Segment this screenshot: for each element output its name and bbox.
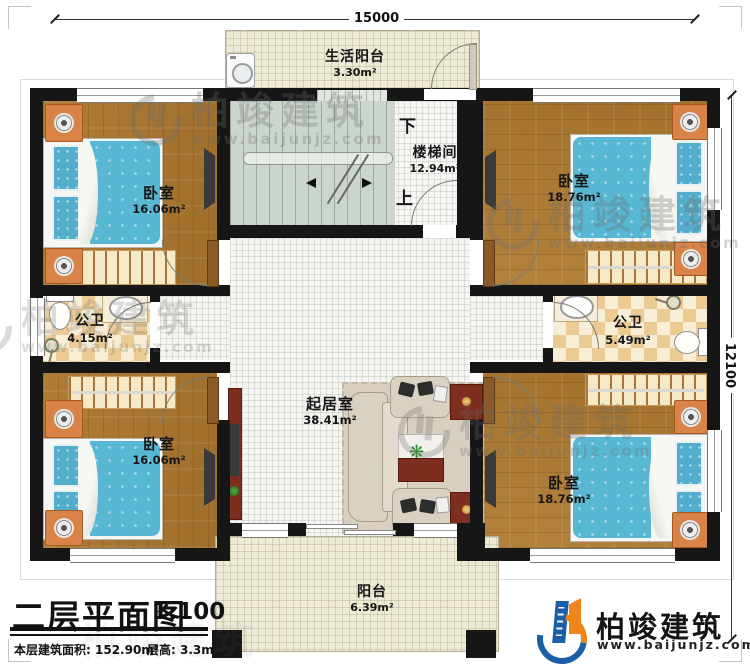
- floor-height-value: 3.3m: [180, 643, 214, 657]
- shower-head: [666, 295, 681, 310]
- crop-mark: [8, 6, 31, 29]
- nightstand: [674, 400, 708, 434]
- window: [530, 548, 675, 563]
- floor-area-note: 本层建筑面积: 152.90m²: [14, 641, 159, 658]
- nightstand: [672, 104, 708, 140]
- sofa-cushion: [400, 498, 417, 514]
- floor-height-label: 层高:: [147, 643, 176, 657]
- room-area-bathroom-left: 4.15m²: [58, 331, 122, 345]
- washing-machine-door: [232, 63, 253, 84]
- side-cabinet: [450, 384, 483, 420]
- title-underline: [10, 627, 208, 631]
- room-label-bedroom-br: 卧室: [514, 475, 614, 492]
- room-label-balcony: 阳台: [327, 585, 417, 600]
- wall: [217, 101, 230, 240]
- tv: [485, 150, 496, 210]
- room-area-living-room: 38.41m²: [282, 413, 378, 427]
- wardrobe: [68, 250, 176, 285]
- window: [77, 88, 203, 103]
- room-area-bathroom-right: 5.49m²: [594, 333, 662, 347]
- washing-machine-knob: [230, 56, 236, 59]
- sofa-cushion: [419, 499, 436, 514]
- wall: [30, 362, 230, 373]
- wall: [30, 285, 230, 296]
- room-area-bedroom-tr: 18.76m²: [519, 190, 629, 204]
- door-leaf: [207, 240, 219, 287]
- bed-pillow: [52, 444, 80, 487]
- wall: [470, 285, 720, 296]
- room-label-life-balcony: 生活阳台: [280, 50, 430, 65]
- window: [70, 548, 175, 563]
- room-area-bedroom-tl: 16.06m²: [104, 202, 214, 216]
- drawing-scale: 1:100: [152, 599, 225, 625]
- wall: [230, 225, 423, 238]
- crop-mark: [719, 6, 742, 29]
- nightstand: [45, 510, 83, 546]
- sofa-cushion: [398, 381, 416, 397]
- stair-window: [317, 90, 387, 101]
- logo-swoosh-icon: [527, 604, 597, 668]
- tv: [230, 424, 239, 476]
- room-label-bedroom-tl: 卧室: [109, 185, 209, 202]
- room-label-living-room: 起居室: [285, 396, 375, 413]
- stair-up-label: 上: [396, 184, 413, 209]
- armchair: [390, 376, 450, 418]
- wall: [456, 225, 470, 238]
- stair-direction-arrow: [362, 178, 372, 188]
- hallway-left-floor: [160, 296, 230, 360]
- hallway-right-floor: [470, 296, 543, 360]
- door-opening: [424, 89, 476, 100]
- room-area-life-balcony: 3.30m²: [280, 66, 430, 79]
- wall: [393, 523, 414, 536]
- room-area-balcony: 6.39m²: [325, 601, 419, 614]
- stair-direction-arrow: [306, 178, 316, 188]
- nightstand: [674, 242, 708, 276]
- nightstand: [45, 248, 83, 284]
- bed-sheet-fold: [649, 437, 669, 538]
- wall: [150, 348, 160, 362]
- wall: [288, 523, 306, 536]
- balcony-pillar: [212, 630, 242, 658]
- door-leaf: [469, 44, 477, 90]
- company-logo: [540, 598, 590, 656]
- tv: [485, 450, 496, 508]
- wall: [543, 296, 553, 302]
- nightstand: [45, 104, 83, 142]
- plant-icon: ❋: [409, 444, 424, 462]
- nightstand: [672, 512, 708, 548]
- sliding-door: [306, 524, 394, 535]
- room-label-bathroom-left: 公卫: [62, 314, 118, 329]
- bed-pillow: [675, 441, 703, 486]
- wall: [470, 101, 483, 240]
- window: [707, 128, 722, 210]
- wall: [222, 523, 242, 536]
- dimension-right-value: 12100: [722, 338, 737, 393]
- sofa-cushion: [417, 381, 434, 396]
- room-label-bedroom-bl: 卧室: [109, 436, 209, 453]
- bed-pillow: [675, 190, 703, 235]
- washing-machine: [226, 53, 255, 88]
- title-underline: [10, 634, 208, 636]
- room-label-stairwell: 楼梯间: [398, 146, 472, 161]
- sofa-cushion: [433, 385, 448, 403]
- company-website: www.baijunjz.com: [597, 637, 750, 652]
- room-label-bathroom-right: 公卫: [600, 316, 656, 331]
- wall: [470, 362, 720, 373]
- plant-icon: [229, 486, 239, 496]
- balcony-pillar: [466, 630, 496, 658]
- wall: [457, 523, 485, 561]
- wardrobe: [68, 376, 176, 409]
- bed-pillow: [52, 195, 80, 241]
- window: [707, 430, 722, 512]
- stair-down-label: 下: [399, 112, 416, 137]
- window: [30, 298, 45, 356]
- room-area-bedroom-br: 18.76m²: [509, 492, 619, 506]
- room-area-stairwell: 12.94m²: [400, 162, 470, 175]
- room-label-bedroom-tr: 卧室: [524, 173, 624, 190]
- door-leaf: [207, 377, 219, 424]
- room-area-bedroom-bl: 16.06m²: [104, 453, 214, 467]
- bed-sheet-fold: [649, 137, 669, 238]
- bed-pillow: [52, 145, 80, 191]
- stair-landing-rail: [243, 152, 393, 165]
- window: [414, 523, 457, 538]
- floor-area-label: 本层建筑面积:: [14, 643, 91, 657]
- bed-pillow: [675, 141, 703, 186]
- nightstand: [45, 400, 83, 438]
- floor-height-note: 层高: 3.3m: [147, 641, 214, 658]
- toilet-bowl: [674, 331, 700, 354]
- window: [242, 523, 288, 538]
- wall: [150, 296, 160, 302]
- floor-plan: 15000 12100: [0, 0, 750, 668]
- sofa-cushion: [435, 496, 450, 513]
- wall: [543, 348, 553, 362]
- window: [533, 88, 680, 103]
- dimension-top-value: 15000: [349, 11, 404, 26]
